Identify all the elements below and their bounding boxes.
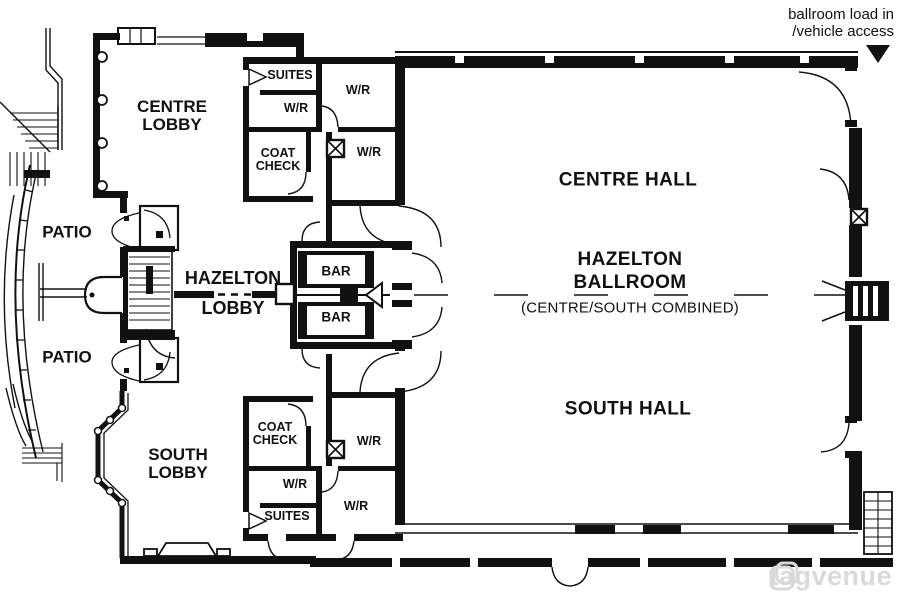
room-label-wr-south-east-upper: W/R bbox=[357, 435, 381, 448]
room-label-wr-north-east-lower: W/R bbox=[357, 146, 381, 159]
room-label-centre-hall: CENTRE HALL bbox=[559, 171, 697, 190]
room-label-hazelton-ballroom: HAZELTON BALLROOM bbox=[574, 248, 687, 294]
room-label-coat-check-south: COAT CHECK bbox=[253, 421, 297, 447]
outlines-and-doors bbox=[0, 28, 892, 586]
load-in-note-line1: ballroom load in bbox=[788, 6, 894, 23]
room-label-suites-south: SUITES bbox=[264, 510, 309, 523]
room-label-ballroom-subtitle: (CENTRE/SOUTH COMBINED) bbox=[521, 301, 739, 316]
room-label-wr-south-east-lower: W/R bbox=[344, 500, 368, 513]
room-label-coat-check-north: COAT CHECK bbox=[256, 147, 300, 173]
floorplan-drawing bbox=[0, 0, 900, 600]
load-in-note: ballroom load in /vehicle access bbox=[788, 6, 894, 40]
room-label-wr-north-inner: W/R bbox=[284, 102, 308, 115]
room-label-centre-lobby: CENTRE LOBBY bbox=[137, 98, 207, 134]
room-label-suites-north: SUITES bbox=[267, 69, 312, 82]
floor-plan: ballroom load in /vehicle access CENTRE … bbox=[0, 0, 900, 600]
load-in-note-line2: /vehicle access bbox=[788, 23, 894, 40]
tagvenue-watermark: tagvenue bbox=[769, 561, 892, 592]
room-label-patio-bottom: PATIO bbox=[42, 349, 91, 366]
room-label-wr-south-inner: W/R bbox=[283, 478, 307, 491]
stage-element bbox=[822, 277, 895, 325]
room-label-bar-bottom: BAR bbox=[321, 310, 350, 324]
room-label-south-hall: SOUTH HALL bbox=[565, 400, 691, 419]
load-in-arrow-icon bbox=[866, 45, 890, 63]
room-label-bar-top: BAR bbox=[321, 264, 350, 278]
room-label-wr-north-east-upper: W/R bbox=[346, 84, 370, 97]
room-label-patio-top: PATIO bbox=[42, 224, 91, 241]
tagvenue-logo-icon bbox=[769, 561, 799, 591]
room-label-hazelton-lobby: HAZELTON LOBBY bbox=[185, 263, 281, 323]
room-label-south-lobby: SOUTH LOBBY bbox=[148, 446, 208, 482]
